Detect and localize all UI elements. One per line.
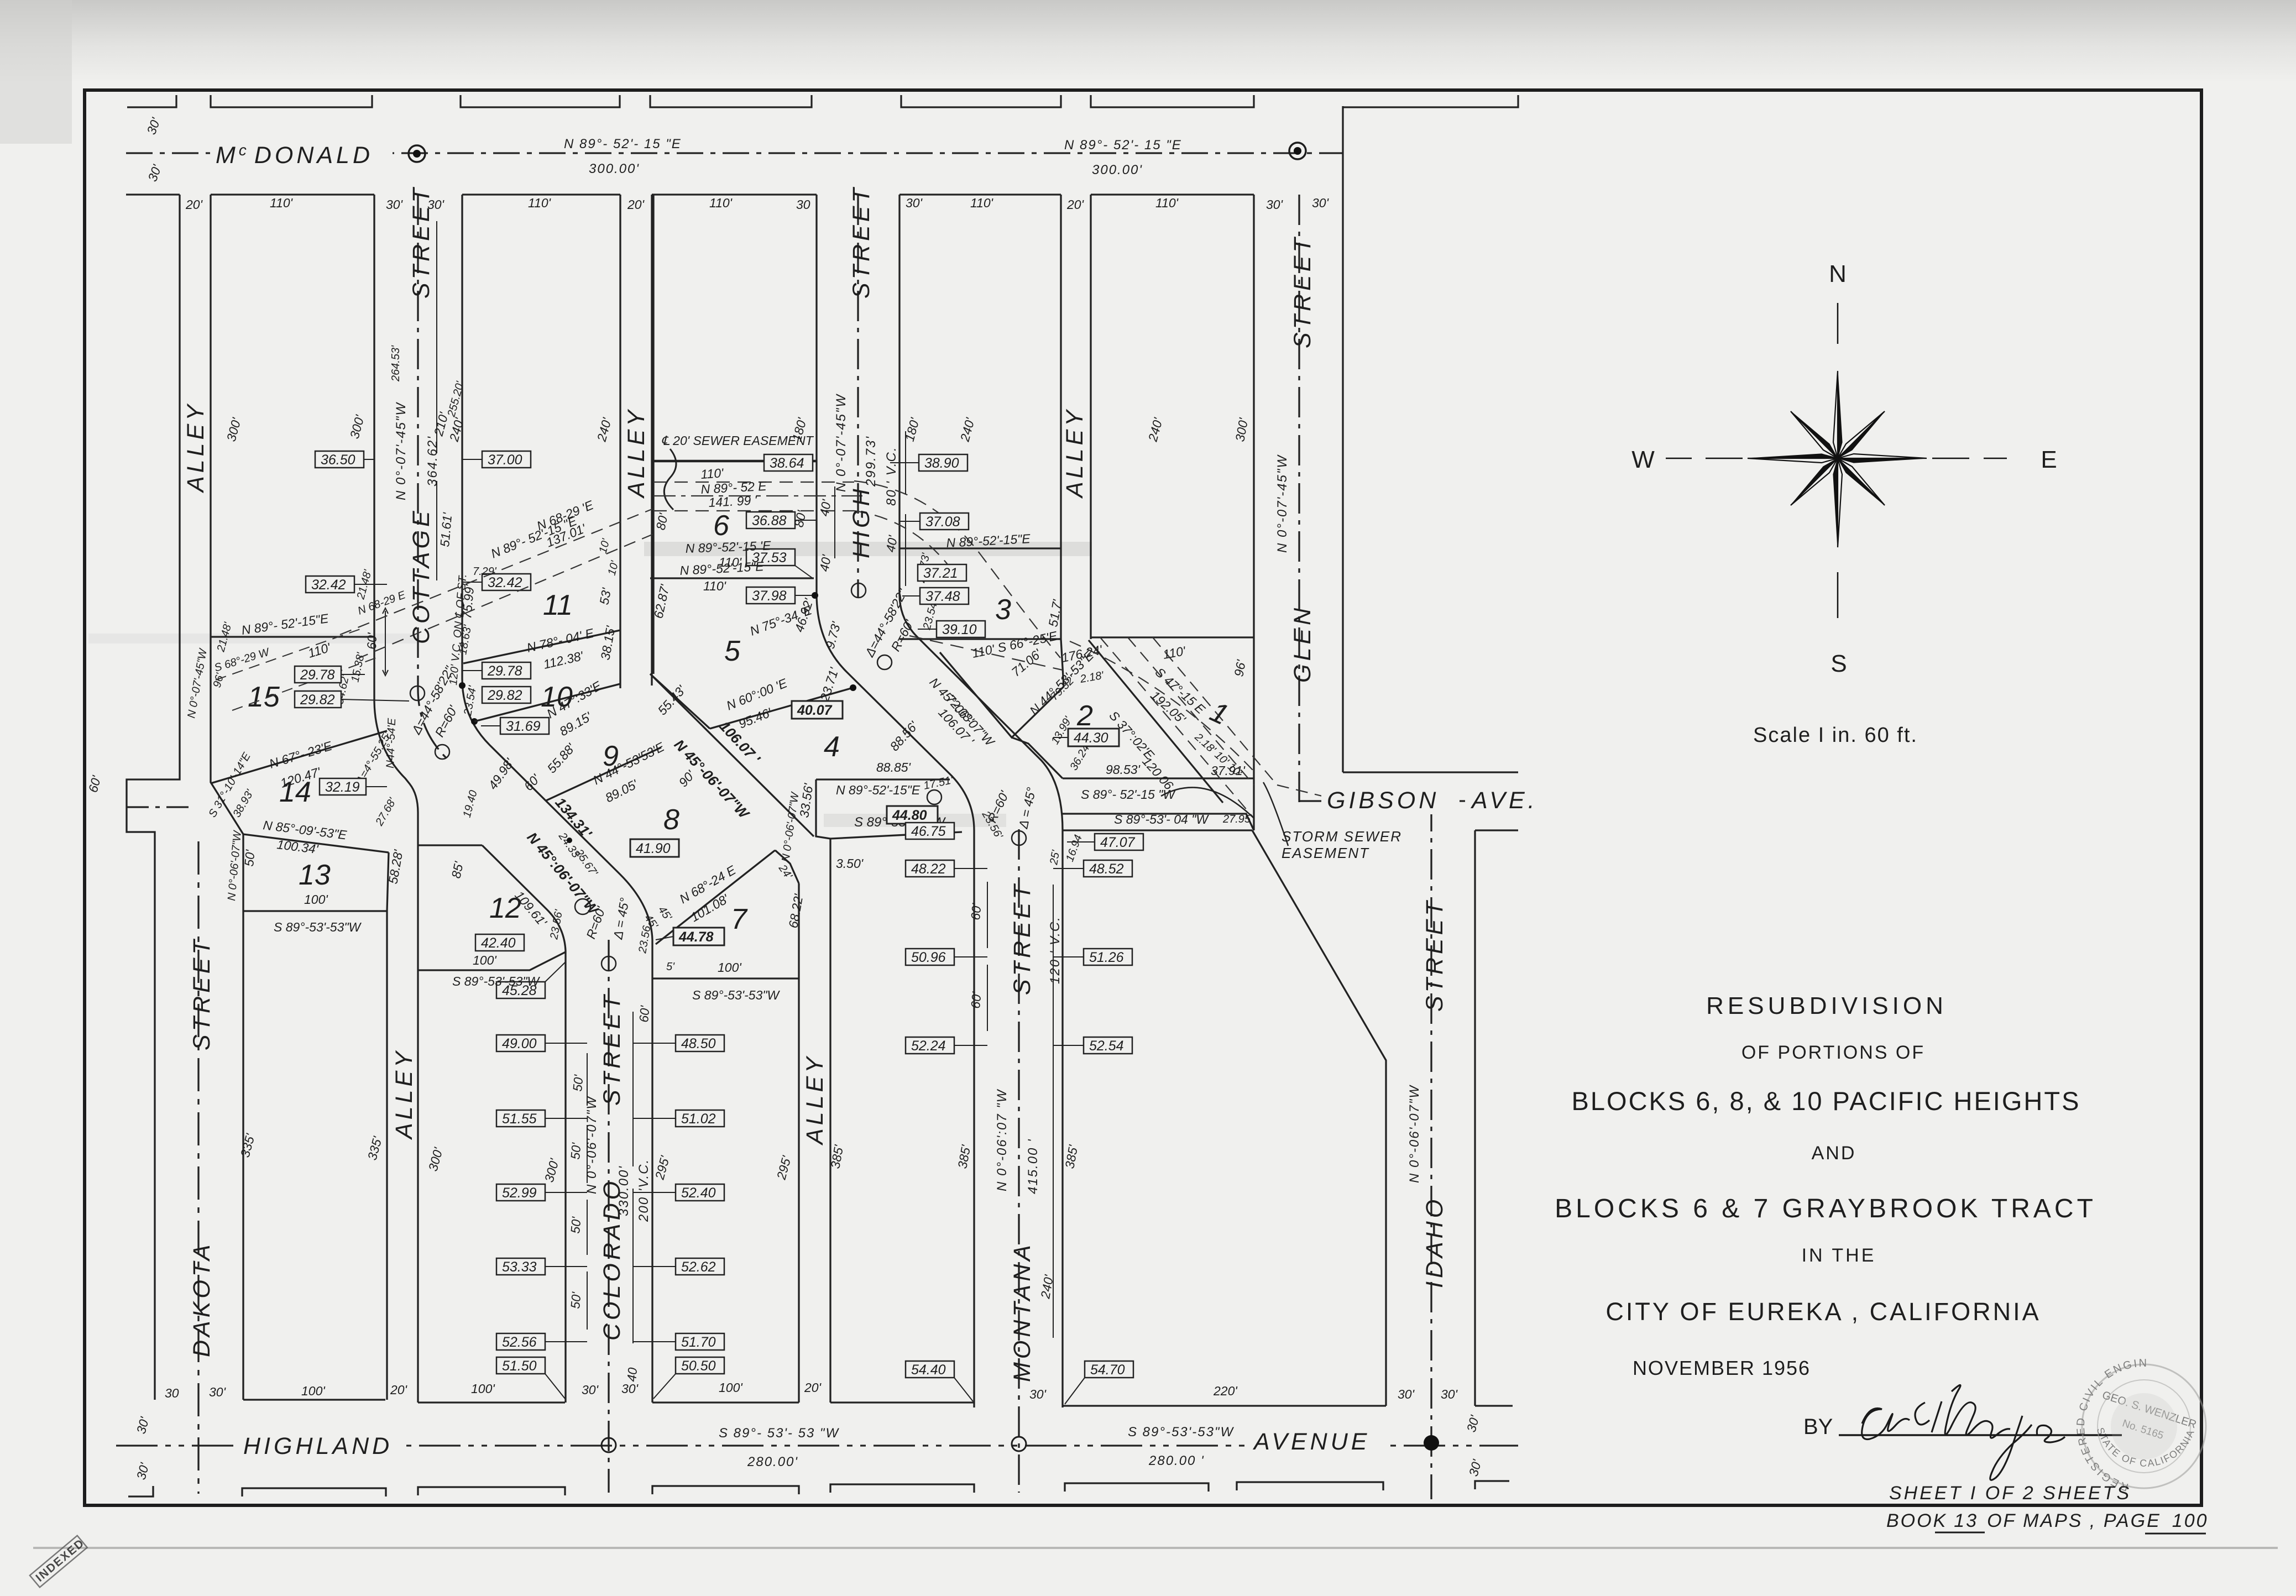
svg-text:S: S [1830,650,1847,677]
svg-text:S 89°-53'-53"W: S 89°-53'-53"W [1128,1425,1234,1440]
svg-text:30: 30 [796,197,810,212]
svg-text:110': 110' [700,465,725,482]
svg-text:N 0°-06'-07"W: N 0°-06'-07"W [1407,1085,1422,1183]
svg-text:GIBSON: GIBSON [1327,787,1439,814]
svg-text:44.80: 44.80 [892,808,927,823]
svg-text:N 0°-07'-45"W: N 0°-07'-45"W [1275,454,1290,553]
svg-text:88.85': 88.85' [876,760,912,775]
svg-text:BLOCKS 6 & 7 GRAYBROOK TRAC: BLOCKS 6 & 7 GRAYBROOK TRACT [1555,1194,2096,1223]
svg-text:AVENUE: AVENUE [1252,1428,1370,1455]
svg-text:48.22: 48.22 [911,861,946,877]
svg-text:N: N [1829,260,1847,287]
svg-text:50': 50' [568,1291,584,1310]
svg-text:N 89°-52'-15"E: N 89°-52'-15"E [836,783,921,797]
svg-text:N44°-54'E: N44°-54'E [384,718,398,768]
svg-text:50.50: 50.50 [681,1358,716,1374]
svg-text:98.53': 98.53' [1106,762,1141,777]
svg-text:S 89°- 53'- 53 "W: S 89°- 53'- 53 "W [719,1426,839,1441]
svg-text:51.26: 51.26 [1089,950,1124,965]
svg-text:40': 40' [883,533,900,553]
svg-text:48.50: 48.50 [681,1036,716,1051]
svg-text:STREET: STREET [599,992,625,1106]
svg-text:200 'V.C.: 200 'V.C. [636,1159,651,1222]
svg-text:STREET: STREET [189,936,215,1050]
svg-text:110': 110' [528,196,552,210]
svg-text:49.00: 49.00 [502,1036,537,1051]
svg-text:STREET: STREET [1289,234,1316,348]
svg-text:7: 7 [731,903,748,935]
svg-text:37.00: 37.00 [488,452,522,468]
svg-text:51.02: 51.02 [681,1111,716,1127]
svg-text:30: 30 [165,1386,179,1400]
svg-text:15: 15 [248,681,280,713]
svg-text:51.55: 51.55 [502,1111,537,1127]
svg-text:54.70: 54.70 [1090,1362,1125,1378]
svg-text:40.07: 40.07 [797,703,833,718]
svg-text:27.95: 27.95 [1222,813,1251,825]
svg-text:4: 4 [824,731,840,763]
svg-text:5: 5 [724,635,741,667]
svg-text:ALLEY: ALLEY [182,401,209,494]
svg-text:N 89°- 52'- 15 "E: N 89°- 52'- 15 "E [564,137,682,151]
svg-text:50': 50' [568,1142,584,1160]
svg-text:ALLEY: ALLEY [802,1054,828,1146]
svg-text:51.50: 51.50 [502,1358,537,1374]
svg-text:COTTAGE: COTTAGE [408,507,435,644]
svg-text:52.24: 52.24 [911,1038,946,1054]
svg-text:N 89°-52'-15 'E: N 89°-52'-15 'E [685,538,771,556]
svg-text:96': 96' [1231,658,1248,678]
svg-text:300.00': 300.00' [589,161,640,176]
svg-text:IN THE: IN THE [1802,1245,1876,1266]
svg-text:SHEET I OF 2 SHEETS: SHEET I OF 2 SHEETS [1889,1483,2131,1504]
svg-text:ALLEY: ALLEY [623,407,650,499]
svg-text:37.98: 37.98 [752,588,787,604]
svg-text:S 89°-53'-53"W: S 89°-53'-53"W [692,988,781,1002]
svg-text:S 89°-53'- 04 "W: S 89°-53'- 04 "W [1114,812,1209,826]
svg-text:30': 30' [1441,1387,1458,1401]
svg-text:53.33: 53.33 [502,1259,537,1275]
svg-text:60': 60' [968,902,984,921]
svg-text:NOVEMBER 1956: NOVEMBER 1956 [1633,1357,1811,1379]
svg-text:60': 60' [364,632,379,650]
svg-text:GLEN: GLEN [1289,605,1316,683]
svg-text:50': 50' [568,1216,584,1234]
svg-text:W: W [1631,446,1655,473]
svg-text:100': 100' [473,953,497,967]
svg-text:47.07: 47.07 [1100,835,1136,850]
svg-text:37.08: 37.08 [925,514,960,530]
svg-text:2: 2 [1076,700,1093,732]
svg-text:N 89°- 52'- 15 "E: N 89°- 52'- 15 "E [1064,138,1182,153]
svg-text:30': 30' [1312,196,1330,210]
svg-text:3: 3 [995,594,1011,626]
svg-text:60': 60' [636,1004,652,1023]
svg-text:AVE.: AVE. [1470,787,1538,814]
svg-text:52.54: 52.54 [1089,1038,1124,1054]
svg-text:38.64: 38.64 [770,456,804,471]
svg-text:30': 30' [906,196,923,210]
svg-text:STREET: STREET [848,185,875,299]
svg-text:30': 30' [1029,1387,1047,1401]
svg-text:110': 110' [1155,196,1179,210]
svg-text:40': 40' [817,498,834,517]
svg-text:13: 13 [299,859,331,891]
svg-text:Scale I in. 60 ft.: Scale I in. 60 ft. [1753,724,1918,747]
svg-text:31.69: 31.69 [506,719,541,734]
svg-text:S 89°- 52'-15 "W: S 89°- 52'-15 "W [1081,787,1176,802]
svg-text:HIGH: HIGH [848,486,875,559]
svg-text:N 0°-06'-07"W: N 0°-06'-07"W [584,1096,599,1194]
svg-text:STORM SEWER: STORM SEWER [1282,828,1402,845]
svg-text:44.30: 44.30 [1074,730,1108,746]
svg-text:100': 100' [718,960,742,975]
svg-text:38.90: 38.90 [924,456,959,471]
svg-text:364.62': 364.62' [425,436,440,486]
svg-text:40: 40 [624,1367,640,1382]
svg-text:110': 110' [709,196,733,210]
svg-text:110': 110' [270,196,294,210]
svg-text:37.48: 37.48 [925,589,960,604]
svg-text:44.78: 44.78 [678,929,714,945]
svg-text:52.62: 52.62 [681,1259,716,1275]
svg-text:29.78: 29.78 [300,667,335,683]
svg-text:299.73': 299.73' [864,436,878,487]
svg-text:HIGHLAND: HIGHLAND [243,1433,393,1459]
svg-text:220': 220' [1213,1384,1238,1398]
svg-text:20': 20' [627,197,645,212]
svg-text:36.88: 36.88 [752,513,787,528]
svg-text:51.70: 51.70 [681,1335,716,1350]
svg-text:N 0°-07'-45"W: N 0°-07'-45"W [834,394,849,492]
svg-text:100': 100' [471,1382,495,1396]
svg-text:S 89°-53'-53"W: S 89°-53'-53"W [274,920,362,934]
svg-text:50.96: 50.96 [911,950,946,965]
svg-text:20': 20' [390,1383,408,1397]
svg-text:32.19: 32.19 [325,779,360,795]
svg-text:IDAHO: IDAHO [1421,1196,1448,1288]
svg-text:40': 40' [817,553,834,573]
svg-text:20': 20' [1066,197,1085,212]
svg-text:STREET: STREET [1421,898,1448,1012]
svg-text:100': 100' [304,892,328,907]
svg-text:29.78: 29.78 [487,663,522,679]
svg-text:50': 50' [570,1074,586,1092]
svg-text:41.90: 41.90 [636,841,671,856]
svg-text:52.99: 52.99 [502,1185,537,1201]
svg-text:6: 6 [713,510,729,542]
svg-text:52.40: 52.40 [681,1185,716,1201]
svg-text:E: E [2041,446,2057,473]
svg-text:N 0°-06':07 "W: N 0°-06':07 "W [995,1089,1010,1191]
svg-text:100': 100' [719,1380,743,1395]
svg-text:BLOCKS 6, 8, & 10 PACIFIC H: BLOCKS 6, 8, & 10 PACIFIC HEIGHTS [1572,1086,2081,1116]
svg-text:52.56: 52.56 [502,1335,537,1350]
svg-text:42.40: 42.40 [481,935,516,951]
svg-text:ALLEY: ALLEY [1061,407,1088,499]
svg-text:5': 5' [666,961,675,973]
svg-text:CITY OF EUREKA , CALIFORNIA: CITY OF EUREKA , CALIFORNIA [1605,1297,2041,1326]
svg-text:RESUBDIVISION: RESUBDIVISION [1706,992,1947,1019]
svg-text:30': 30' [386,197,404,212]
svg-text:MONTANA: MONTANA [1009,1242,1035,1382]
svg-text:29.82: 29.82 [300,692,335,708]
svg-text:50': 50' [242,849,258,867]
svg-text:S 89°-53'-53"W: S 89°-53'-53"W [452,974,541,988]
svg-text:100': 100' [301,1384,326,1398]
svg-text:110': 110' [703,579,727,593]
svg-text:80 ' V.C.: 80 ' V.C. [884,446,899,506]
svg-text:141. 99 ': 141. 99 ' [708,493,758,510]
svg-text:8: 8 [663,804,679,836]
svg-text:20': 20' [804,1380,822,1395]
svg-text:60': 60' [968,991,984,1009]
svg-text:STREET: STREET [408,185,435,299]
svg-text:20': 20' [185,197,203,212]
svg-text:37.21: 37.21 [923,566,958,581]
svg-text:11: 11 [543,589,573,621]
svg-text:ALLEY: ALLEY [391,1048,417,1140]
svg-text:BOOK13OF MAPS , PAGE100: BOOK13OF MAPS , PAGE100 [1886,1510,2209,1531]
svg-text:BY: BY [1803,1415,1833,1439]
svg-text:30': 30' [621,1382,639,1396]
svg-text:264.53': 264.53' [390,345,402,382]
svg-text:53': 53' [597,586,614,606]
svg-text:3.50': 3.50' [836,856,864,871]
svg-text:300.00': 300.00' [1092,163,1143,177]
svg-text:120 ' V.C.: 120 ' V.C. [1048,916,1063,984]
svg-text:30': 30' [209,1385,227,1399]
svg-text:7.29': 7.29' [473,566,497,578]
svg-text:54.40: 54.40 [911,1362,946,1378]
svg-text:280.00 ': 280.00 ' [1148,1453,1205,1468]
svg-text:OF PORTIONS OF: OF PORTIONS OF [1741,1042,1925,1063]
svg-text:32.42: 32.42 [311,577,346,593]
svg-text:DAKOTA: DAKOTA [189,1241,215,1357]
svg-text:30': 30' [582,1383,599,1397]
svg-text:110': 110' [970,196,994,210]
svg-text:51.61': 51.61' [437,511,454,548]
svg-text:37.91': 37.91' [1211,763,1246,778]
svg-text:30': 30' [1266,197,1284,212]
svg-text:AND: AND [1812,1143,1856,1164]
svg-text:48.52: 48.52 [1089,861,1124,877]
svg-text:N 0°-07'-45"W: N 0°-07'-45"W [394,402,409,500]
svg-text:280.00': 280.00' [747,1454,798,1469]
svg-text:30': 30' [1398,1387,1415,1401]
svg-text:29.82: 29.82 [487,688,522,703]
svg-text:415.00 ': 415.00 ' [1026,1138,1040,1194]
svg-text:EASEMENT: EASEMENT [1282,845,1369,861]
svg-text:36.50: 36.50 [321,452,355,468]
svg-text:STREET: STREET [1009,881,1035,995]
svg-text:39.10: 39.10 [942,622,977,637]
svg-text:330.00': 330.00' [616,1165,631,1216]
svg-text:46.75: 46.75 [911,824,946,839]
